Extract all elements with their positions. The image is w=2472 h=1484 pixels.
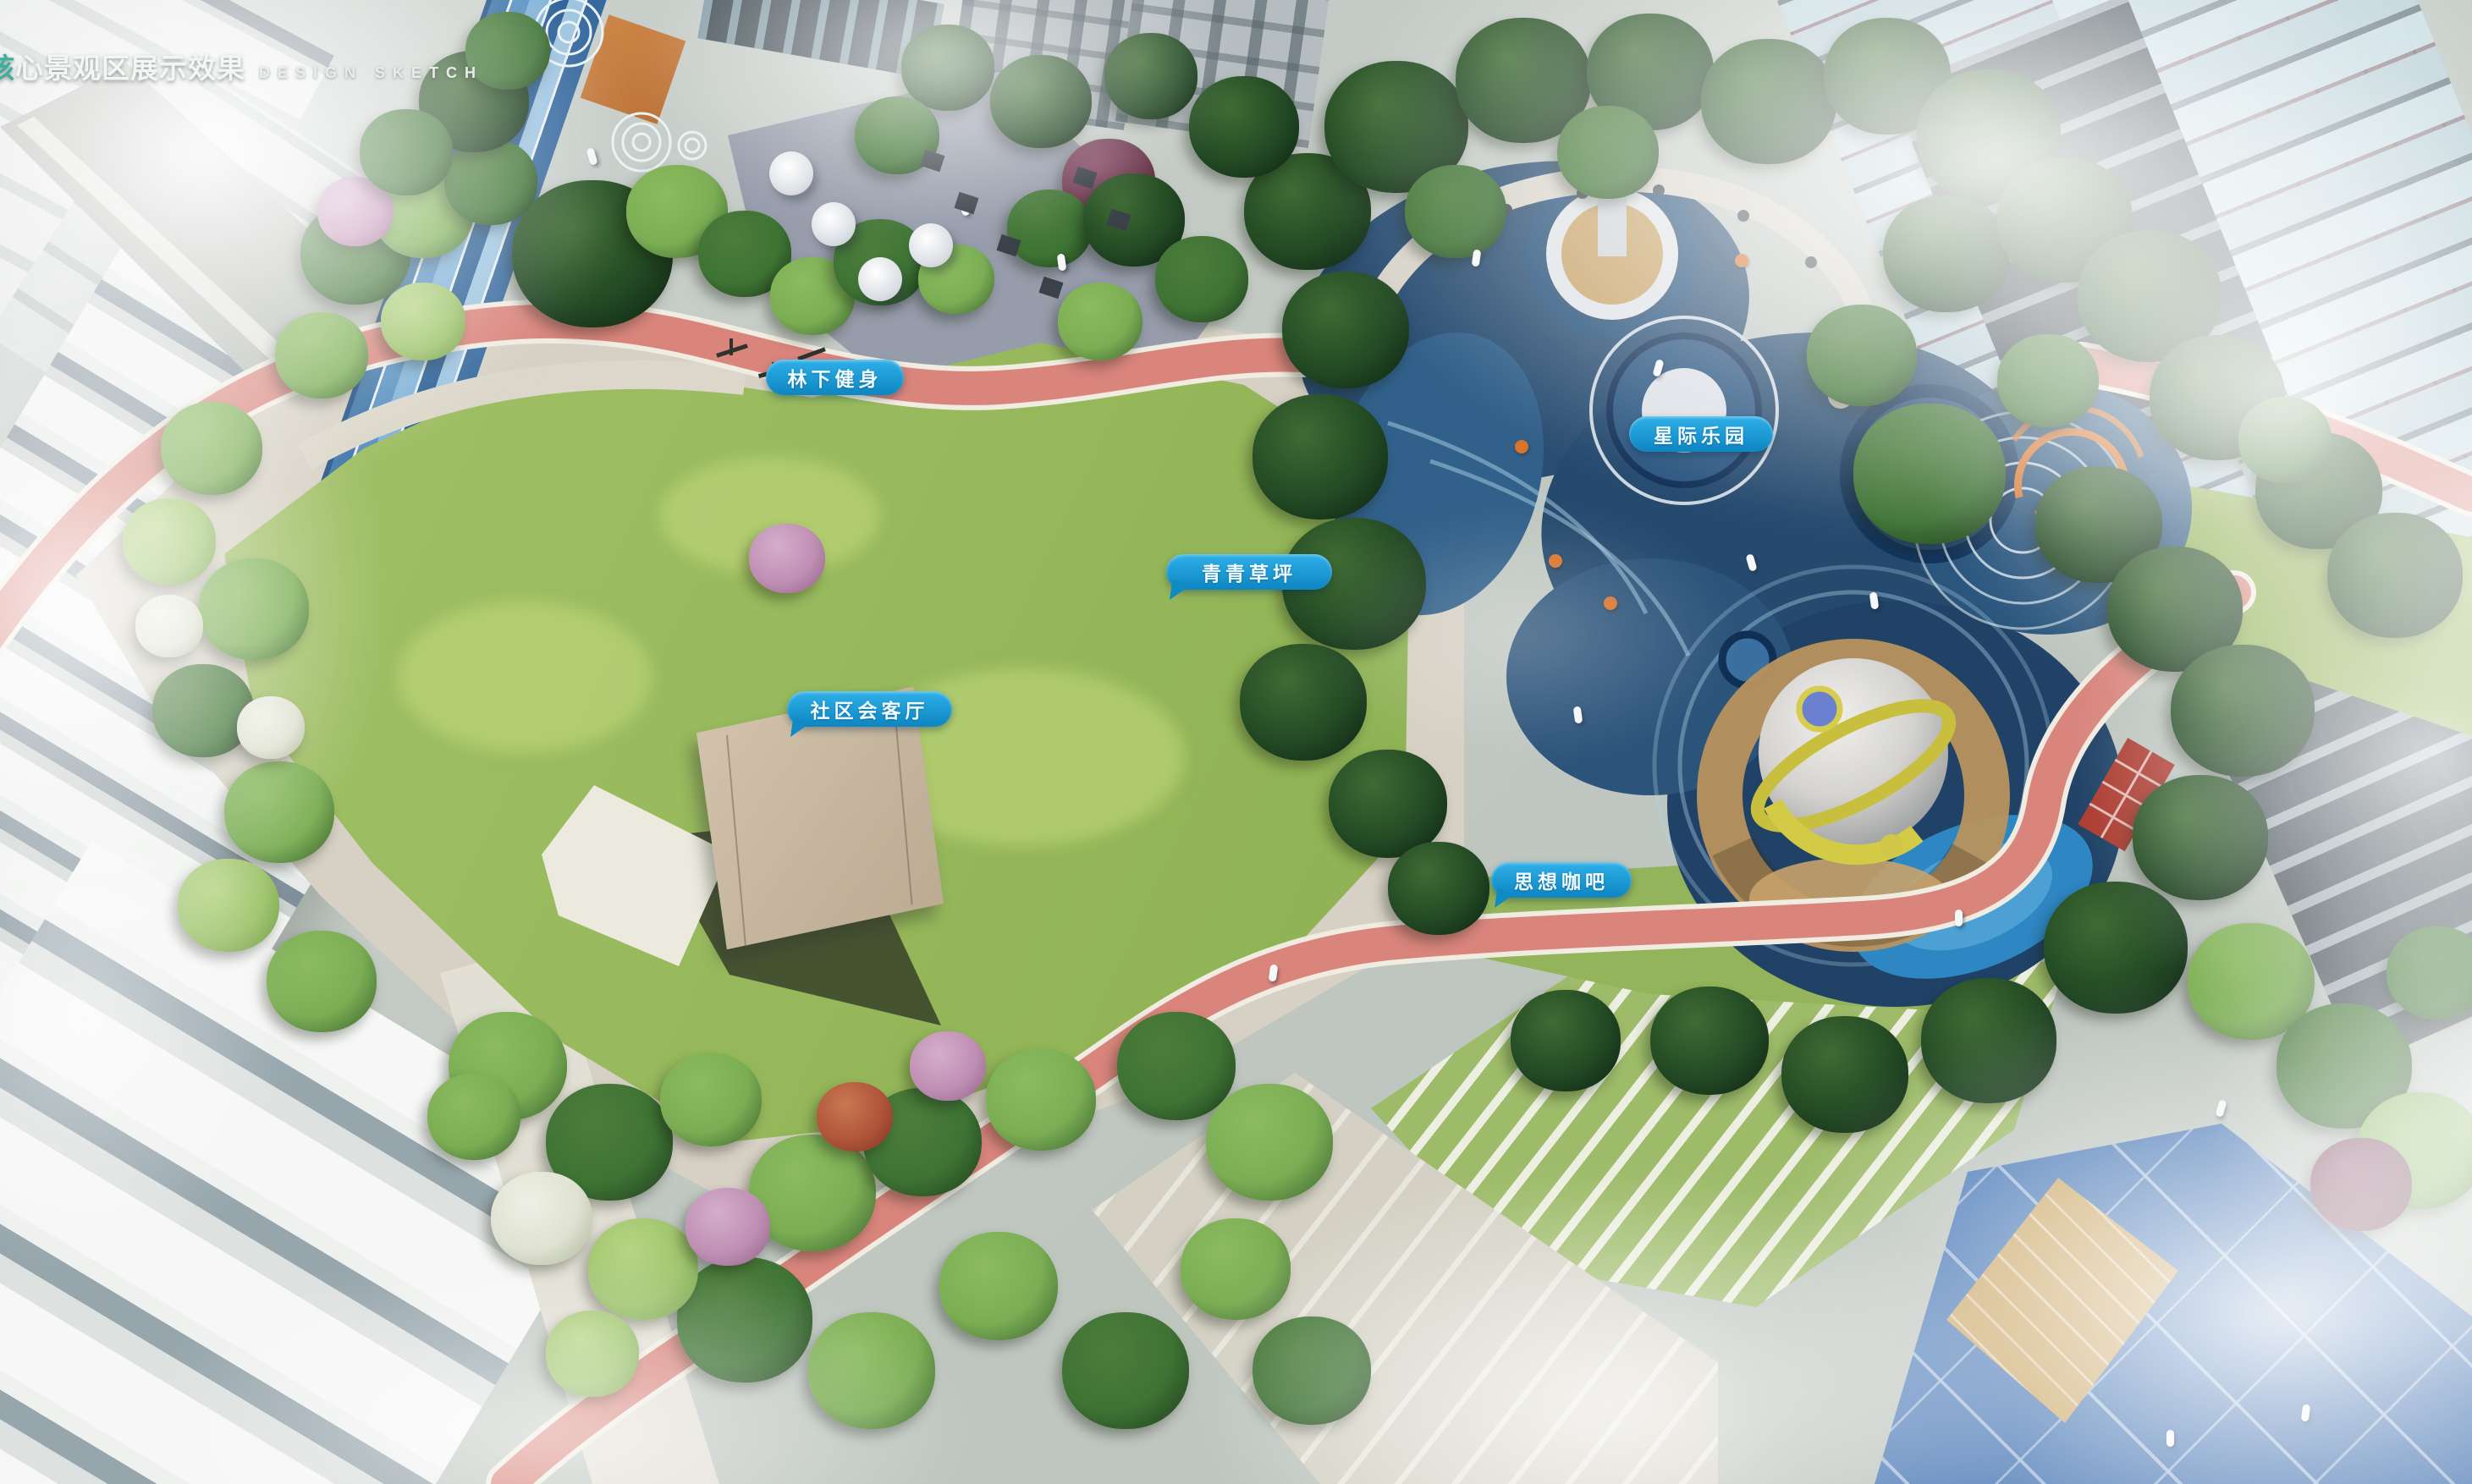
tree-canopy	[910, 1031, 986, 1102]
orange-play-equipment	[1735, 254, 1748, 267]
tree-canopy	[2133, 775, 2268, 899]
title-main-text: 心景观区展示效果	[15, 52, 245, 84]
area-label-text: 思想咖吧	[1514, 866, 1609, 894]
tree-canopy	[990, 55, 1092, 148]
tree-canopy	[1883, 195, 2010, 312]
orange-play-equipment	[1515, 440, 1528, 453]
tree-canopy	[1240, 644, 1367, 761]
tree-canopy	[1388, 842, 1489, 935]
tree-canopy	[1701, 39, 1836, 163]
area-label-idea-cafe: 思想咖吧	[1491, 862, 1632, 898]
tree-canopy	[2044, 882, 2188, 1014]
tree-canopy	[381, 283, 465, 360]
tree-canopy	[199, 558, 309, 660]
fitness-post	[729, 338, 733, 355]
trampoline-dish	[1591, 317, 1777, 503]
tree-canopy	[135, 595, 203, 657]
human-figure	[2166, 1430, 2174, 1447]
tree-canopy	[123, 498, 216, 584]
area-label-star-park: 星际乐园	[1629, 416, 1773, 452]
area-label-text: 青青草坪	[1202, 558, 1297, 586]
tree-canopy	[1807, 305, 1917, 406]
tree-canopy	[267, 931, 377, 1032]
tree-canopy	[1189, 76, 1299, 178]
tree-canopy	[1253, 1316, 1371, 1426]
tree-canopy	[1117, 1012, 1236, 1121]
tree-canopy	[2171, 645, 2315, 777]
tree-canopy	[901, 25, 994, 110]
orange-play-equipment	[1604, 596, 1617, 610]
tree-canopy	[588, 1218, 698, 1320]
tree-canopy	[685, 1188, 770, 1266]
page-title: 核心景观区展示效果 DESIGN SKETCH	[0, 46, 483, 86]
landscape-design-rendering: 核心景观区展示效果 DESIGN SKETCH 林下健身 青青草坪 社区会客厅 …	[0, 0, 2472, 1484]
tree-canopy	[1781, 1016, 1908, 1133]
tree-canopy	[444, 139, 537, 224]
tree-canopy	[1650, 987, 1769, 1096]
tree-canopy	[275, 312, 368, 398]
cafe-umbrella	[769, 151, 813, 195]
tree-canopy	[1405, 165, 1506, 258]
tree-canopy	[660, 1053, 762, 1146]
tree-canopy	[749, 524, 825, 594]
tree-canopy	[1104, 33, 1197, 118]
area-label-community-lounge: 社区会客厅	[787, 691, 952, 727]
tree-canopy	[1282, 272, 1409, 388]
tree-canopy	[491, 1172, 592, 1265]
area-label-text: 星际乐园	[1654, 420, 1748, 448]
area-label-text: 林下健身	[788, 363, 883, 392]
orange-play-equipment	[1549, 554, 1562, 568]
tree-canopy	[237, 696, 305, 759]
title-chinese: 核心景观区展示效果	[0, 46, 245, 86]
cafe-umbrella	[812, 202, 856, 246]
tree-canopy	[1997, 334, 2099, 427]
cafe-umbrella	[858, 257, 902, 301]
area-label-forest-fitness: 林下健身	[766, 360, 904, 395]
tree-canopy	[178, 859, 279, 952]
tree-canopy	[1557, 106, 1659, 199]
tree-canopy	[360, 109, 453, 195]
fitness-path	[305, 375, 745, 457]
cafe-umbrella	[909, 223, 953, 267]
roof-seam	[726, 735, 746, 946]
area-label-green-lawn: 青青草坪	[1166, 554, 1332, 590]
walkway-ripples	[535, 0, 706, 171]
tree-canopy	[161, 402, 262, 495]
tree-canopy	[2327, 513, 2463, 637]
tree-canopy	[2387, 926, 2472, 1020]
tree-canopy	[986, 1049, 1096, 1151]
tree-canopy	[1181, 1218, 1291, 1320]
tree-canopy	[152, 664, 254, 757]
tree-canopy	[2238, 397, 2332, 482]
tree-canopy	[546, 1311, 639, 1396]
title-english: DESIGN SKETCH	[259, 64, 483, 82]
tree-canopy	[1155, 236, 1248, 322]
tree-canopy	[1921, 978, 2056, 1102]
tree-canopy	[1007, 190, 1092, 267]
tree-canopy	[427, 1074, 520, 1159]
human-figure	[1955, 910, 1963, 926]
tree-canopy	[1206, 1084, 1333, 1201]
tree-canopy	[1058, 283, 1142, 360]
tree-canopy	[1511, 990, 1621, 1091]
tree-canopy	[808, 1312, 935, 1429]
tree-canopy	[1253, 394, 1388, 519]
tree-canopy	[224, 761, 334, 863]
area-label-text: 社区会客厅	[811, 695, 929, 723]
tree-canopy	[817, 1082, 893, 1152]
tree-canopy	[2310, 1138, 2412, 1231]
tree-canopy	[1062, 1312, 1189, 1429]
tree-canopy	[1853, 404, 2006, 544]
title-accent-char: 核	[0, 52, 15, 84]
tree-canopy	[939, 1232, 1058, 1341]
